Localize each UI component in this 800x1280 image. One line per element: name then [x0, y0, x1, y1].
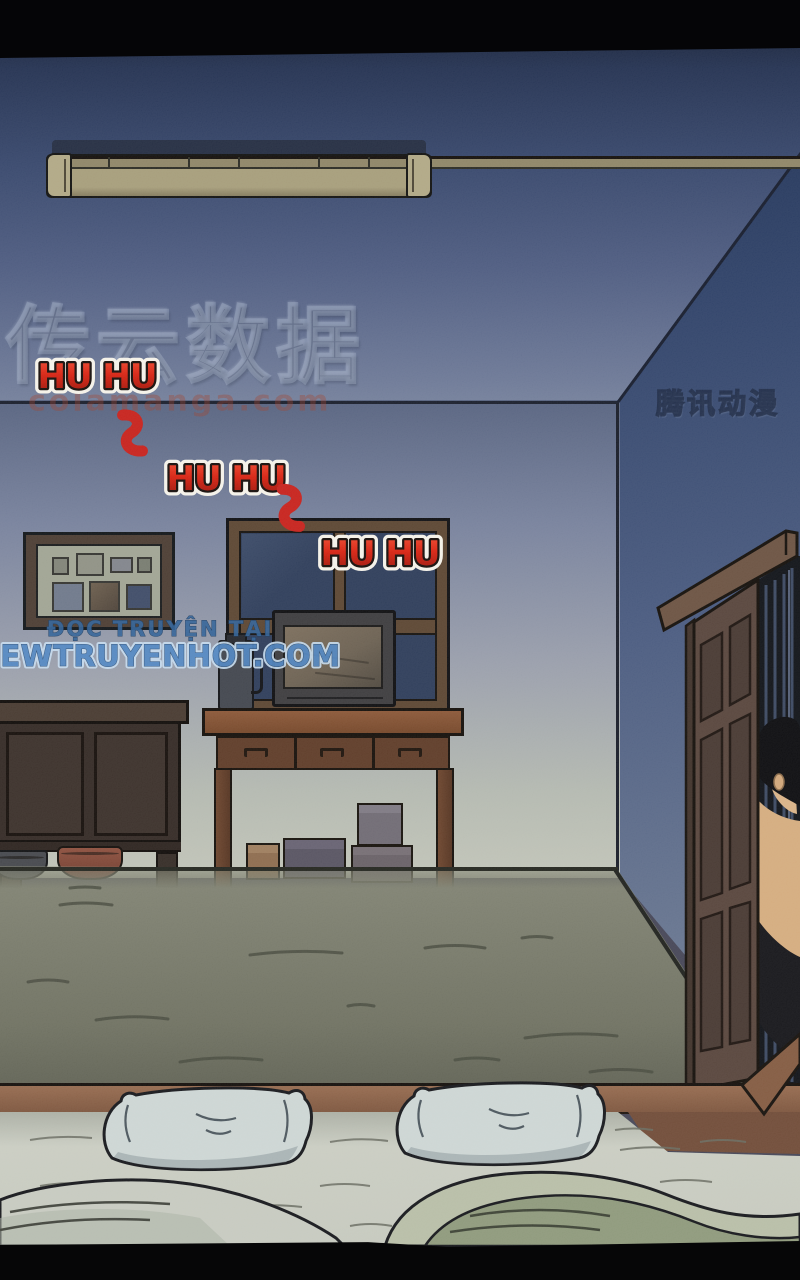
- bottom-panel-gutter: [0, 1241, 800, 1280]
- comic-panel: 传云数据 colamanga.com 腾讯动漫: [0, 0, 800, 1280]
- promo-layer: ĐỌC TRUYỆN TẠI NEWTRUYENHOT.COM NEWTRUYE…: [0, 0, 800, 1280]
- promo-line2: NEWTRUYENHOT.COM: [0, 639, 340, 673]
- promo-line1: ĐỌC TRUYỆN TẠI: [47, 615, 274, 641]
